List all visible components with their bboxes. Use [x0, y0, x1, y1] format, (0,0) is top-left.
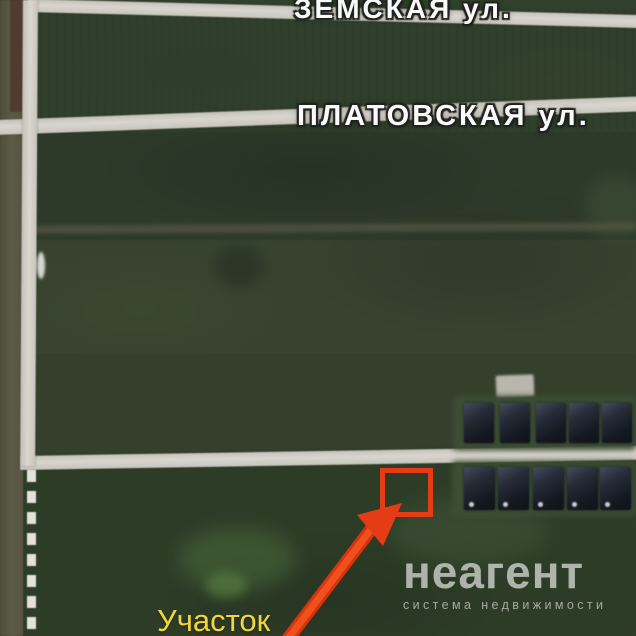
satellite-map: ЗЕМСКАЯ ул. ПЛАТОВСКАЯ ул. Участок неаге… — [0, 0, 636, 636]
building — [602, 403, 632, 443]
bare-soil-strip — [10, 0, 22, 112]
building-light — [469, 502, 474, 507]
building-light — [538, 502, 543, 507]
dark-ground-patch — [214, 246, 264, 288]
watermark-brand: неагент — [403, 549, 606, 595]
building-light — [503, 502, 508, 507]
building — [464, 403, 494, 443]
building-light — [605, 502, 610, 507]
street-label-zemskaya: ЗЕМСКАЯ ул. — [294, 0, 513, 25]
building-light — [572, 502, 577, 507]
imagery-layer — [0, 0, 636, 636]
building — [536, 403, 566, 443]
plot-marker-square — [380, 468, 433, 517]
building — [567, 467, 598, 510]
building — [600, 467, 631, 510]
building — [533, 467, 564, 510]
watermark-tagline: система недвижимости — [403, 598, 606, 612]
grass-patch — [205, 572, 247, 598]
small-shed — [496, 374, 535, 397]
street-label-platovskaya: ПЛАТОВСКАЯ ул. — [297, 100, 590, 133]
dashed-boundary-line — [27, 470, 36, 636]
watermark: неагент система недвижимости — [403, 549, 606, 612]
building — [464, 467, 495, 510]
vehicle-on-road — [37, 252, 45, 279]
road-vertical — [20, 0, 38, 466]
plot-label: Участок — [157, 603, 270, 636]
building — [569, 403, 599, 443]
building — [500, 403, 530, 443]
building — [498, 467, 529, 510]
